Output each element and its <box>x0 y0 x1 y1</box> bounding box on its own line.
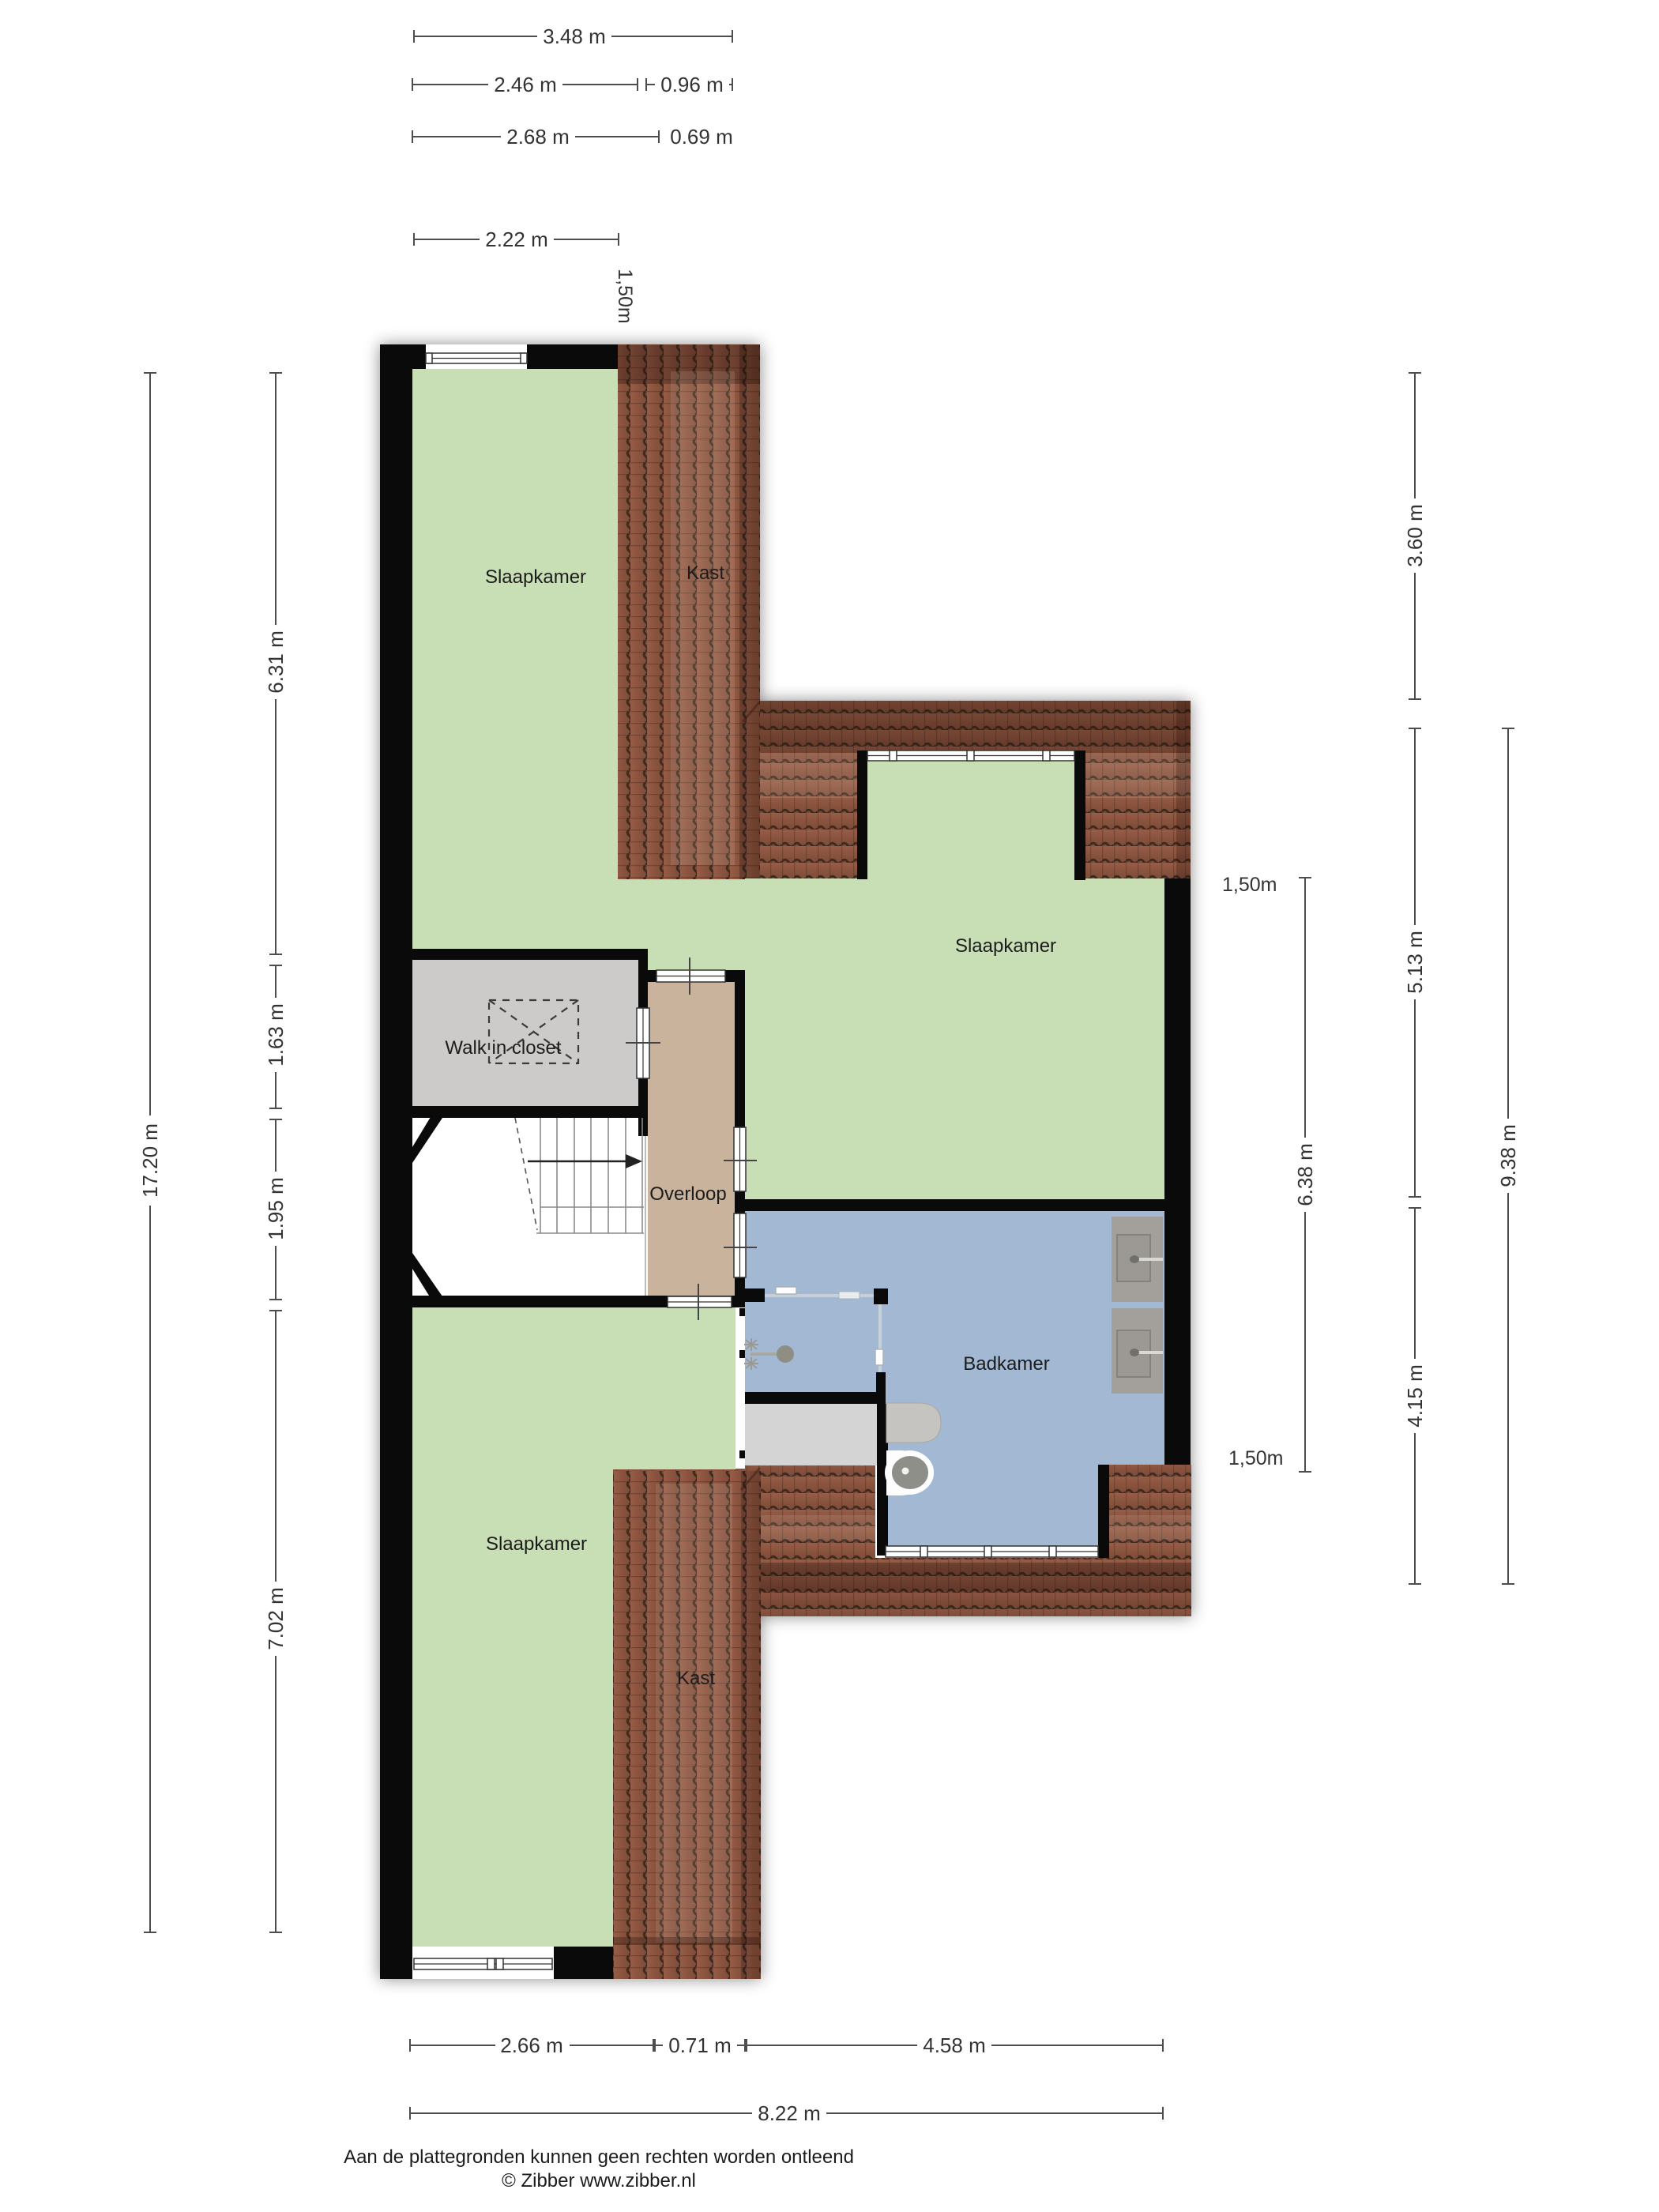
svg-text:Badkamer: Badkamer <box>963 1353 1049 1375</box>
svg-text:6.31 m: 6.31 m <box>264 630 288 694</box>
svg-text:2.66 m: 2.66 m <box>500 2033 563 2057</box>
svg-text:3.60 m: 3.60 m <box>1403 504 1427 567</box>
svg-text:3.48 m: 3.48 m <box>543 24 606 48</box>
svg-text:4.58 m: 4.58 m <box>923 2033 986 2057</box>
svg-text:1,50m: 1,50m <box>1228 1447 1283 1469</box>
svg-text:7.02 m: 7.02 m <box>264 1587 288 1650</box>
svg-text:9.38 m: 9.38 m <box>1496 1124 1520 1187</box>
svg-text:1,50m: 1,50m <box>614 269 636 323</box>
svg-text:2.68 m: 2.68 m <box>506 125 570 149</box>
svg-text:17.20 m: 17.20 m <box>138 1123 162 1198</box>
svg-text:6.38 m: 6.38 m <box>1293 1143 1317 1206</box>
svg-text:1.95 m: 1.95 m <box>264 1177 288 1240</box>
svg-text:Overloop: Overloop <box>649 1183 726 1205</box>
svg-text:2.46 m: 2.46 m <box>494 73 557 96</box>
svg-text:Slaapkamer: Slaapkamer <box>485 566 586 588</box>
svg-text:Kast: Kast <box>687 562 724 584</box>
svg-text:Slaapkamer: Slaapkamer <box>486 1533 587 1555</box>
svg-text:1,50m: 1,50m <box>1222 874 1277 896</box>
svg-text:2.22 m: 2.22 m <box>485 228 548 251</box>
svg-text:0.96 m: 0.96 m <box>660 73 724 96</box>
svg-text:0.69 m: 0.69 m <box>670 125 733 149</box>
svg-text:© Zibber www.zibber.nl: © Zibber www.zibber.nl <box>502 2170 696 2191</box>
svg-text:Kast: Kast <box>677 1668 715 1689</box>
svg-text:Slaapkamer: Slaapkamer <box>955 935 1056 957</box>
svg-text:1.63 m: 1.63 m <box>264 1003 288 1066</box>
svg-text:8.22 m: 8.22 m <box>758 2101 821 2125</box>
svg-text:Walk in closet: Walk in closet <box>445 1037 561 1059</box>
svg-text:5.13 m: 5.13 m <box>1403 931 1427 994</box>
svg-text:4.15 m: 4.15 m <box>1403 1364 1427 1428</box>
svg-text:0.71 m: 0.71 m <box>668 2033 732 2057</box>
svg-text:Aan de plattegronden kunnen ge: Aan de plattegronden kunnen geen rechten… <box>344 2146 854 2168</box>
